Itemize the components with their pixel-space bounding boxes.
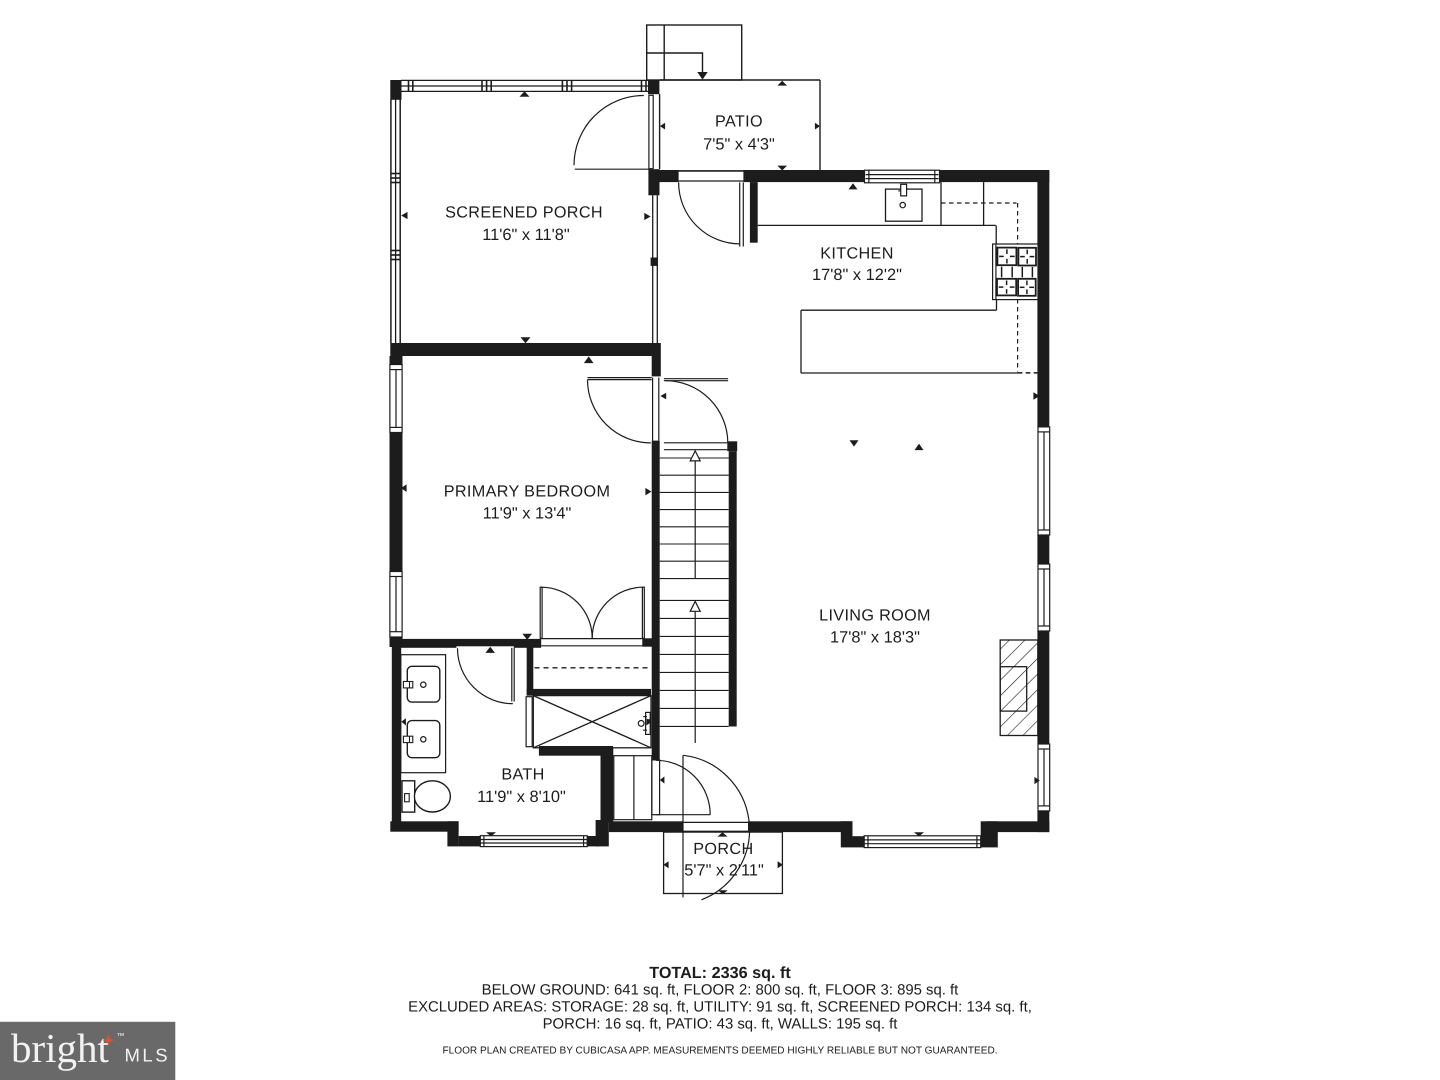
svg-text:FLOOR PLAN CREATED BY CUBICASA: FLOOR PLAN CREATED BY CUBICASA APP. MEAS… — [442, 1046, 997, 1057]
svg-text:PATIO: PATIO — [715, 113, 763, 131]
svg-text:BATH: BATH — [501, 766, 544, 784]
svg-text:5'7" x 2'11": 5'7" x 2'11" — [684, 862, 764, 880]
svg-text:BELOW GROUND: 641 sq. ft, FLOO: BELOW GROUND: 641 sq. ft, FLOOR 2: 800 s… — [482, 983, 960, 999]
svg-text:7'5" x 4'3": 7'5" x 4'3" — [703, 136, 775, 154]
svg-text:™: ™ — [117, 1032, 125, 1041]
svg-text:bright: bright — [11, 1025, 110, 1071]
svg-text:KITCHEN: KITCHEN — [820, 245, 894, 263]
svg-text:PRIMARY BEDROOM: PRIMARY BEDROOM — [444, 483, 611, 501]
svg-text:TOTAL: 2336 sq. ft: TOTAL: 2336 sq. ft — [649, 964, 791, 982]
svg-text:MLS: MLS — [125, 1045, 171, 1066]
svg-text:LIVING ROOM: LIVING ROOM — [819, 607, 931, 625]
svg-text:EXCLUDED AREAS: STORAGE: 28 sq: EXCLUDED AREAS: STORAGE: 28 sq. ft, UTIL… — [408, 1000, 1032, 1016]
svg-text:11'6" x 11'8": 11'6" x 11'8" — [482, 226, 570, 244]
svg-text:17'8" x 12'2": 17'8" x 12'2" — [812, 266, 902, 284]
svg-text:11'9" x 13'4": 11'9" x 13'4" — [483, 505, 572, 523]
svg-text:17'8" x 18'3": 17'8" x 18'3" — [830, 629, 920, 647]
svg-text:PORCH: PORCH — [693, 840, 753, 858]
svg-text:SCREENED PORCH: SCREENED PORCH — [445, 204, 603, 222]
svg-text:11'9" x 8'10": 11'9" x 8'10" — [477, 788, 566, 806]
svg-text:PORCH: 16 sq. ft, PATIO: 43 sq: PORCH: 16 sq. ft, PATIO: 43 sq. ft, WALL… — [543, 1017, 899, 1033]
